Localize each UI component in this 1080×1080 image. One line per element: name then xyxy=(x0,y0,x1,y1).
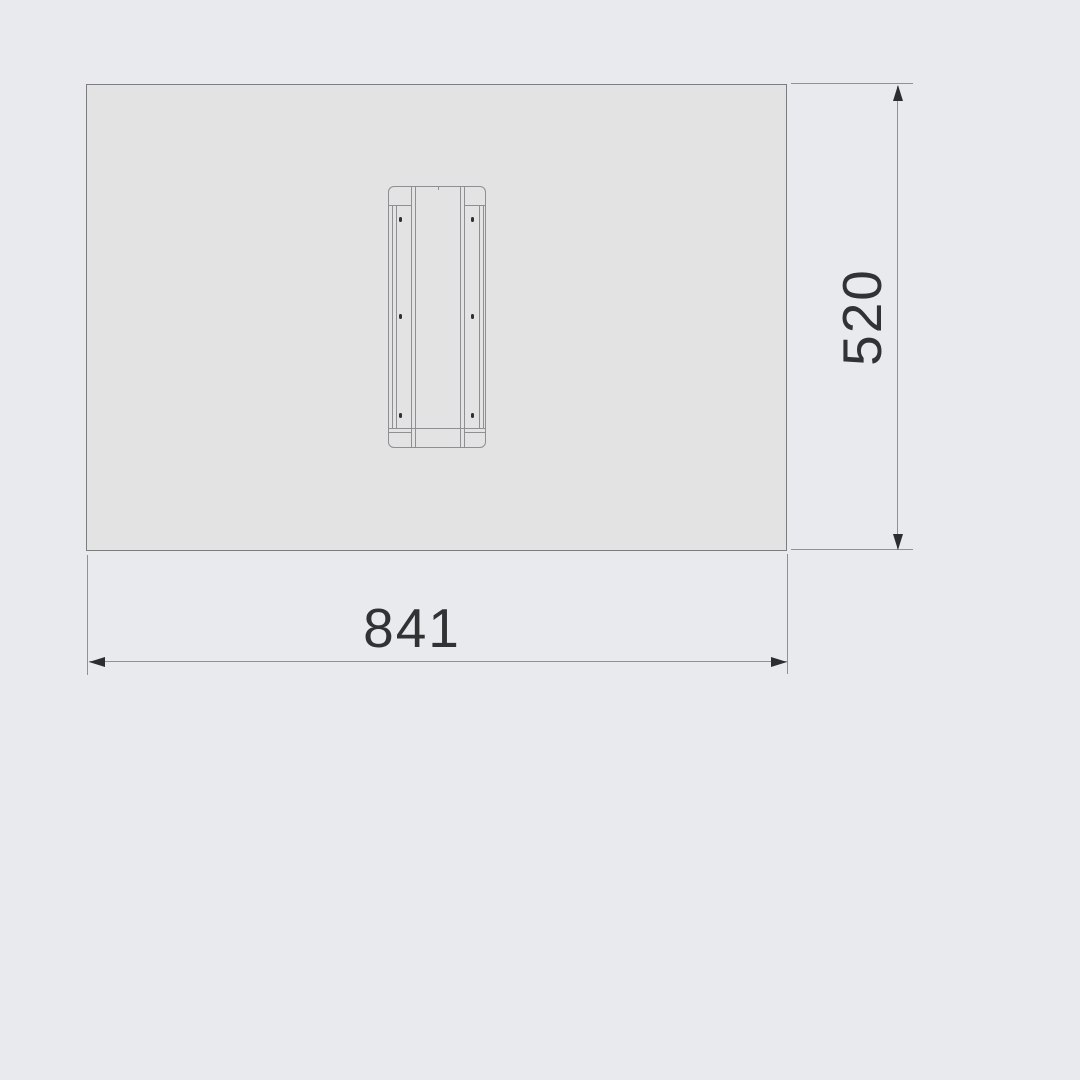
bracket-rail-line xyxy=(392,206,393,428)
bracket-strip-line xyxy=(460,186,461,448)
bracket-rail-line xyxy=(483,206,484,428)
bracket-bottom-cap-line xyxy=(464,432,486,433)
bracket-bottom-cap-line xyxy=(389,432,412,433)
arrow-up-icon xyxy=(893,85,903,101)
screw-hole xyxy=(471,314,474,319)
screw-hole xyxy=(471,217,474,222)
bracket-bottom-cap-line xyxy=(389,428,486,429)
bracket-rail-line xyxy=(479,206,480,428)
bracket-strip-line xyxy=(464,186,465,448)
arrow-right-icon xyxy=(771,657,787,667)
extension-line-left xyxy=(87,555,88,675)
screw-hole xyxy=(399,217,402,222)
extension-line-right xyxy=(787,554,788,674)
extension-line-top xyxy=(791,83,913,84)
bracket-strip-line xyxy=(415,186,416,448)
width-dimension-line xyxy=(89,661,787,662)
arrow-left-icon xyxy=(89,657,105,667)
arrow-down-icon xyxy=(893,534,903,550)
bracket-rail-line xyxy=(396,206,397,428)
screw-hole xyxy=(399,413,402,418)
screw-hole xyxy=(471,413,474,418)
drawing-canvas: 520 841 xyxy=(0,0,1080,1080)
height-dimension-label: 520 xyxy=(834,217,890,417)
bracket-top-tick xyxy=(438,186,439,190)
height-dimension-line xyxy=(897,86,898,550)
screw-hole xyxy=(399,314,402,319)
bracket-strip-line xyxy=(411,186,412,448)
width-dimension-label: 841 xyxy=(312,600,512,656)
